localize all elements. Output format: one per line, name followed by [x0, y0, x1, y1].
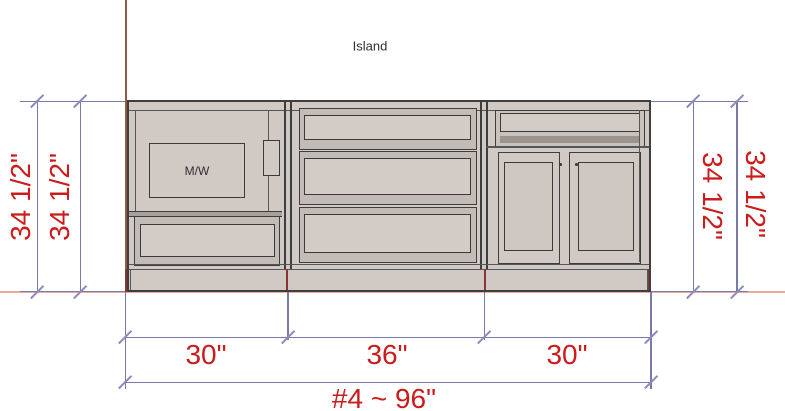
width-dim-label-2[interactable]: 36"	[366, 341, 407, 369]
dim-line	[125, 337, 651, 339]
drawer-front[interactable]	[299, 151, 477, 205]
height-dim-label-right-inner[interactable]: 34 1/2"	[698, 152, 726, 240]
room-label[interactable]: Island	[353, 39, 388, 54]
dim-line	[80, 101, 82, 292]
drawing-canvas: Island M/W	[0, 0, 785, 411]
door-knob	[559, 163, 562, 166]
door-panel	[504, 162, 553, 251]
cabinet-joint-line	[284, 100, 286, 269]
drawer-front-panel	[304, 115, 471, 140]
microwave-box[interactable]: M/W	[149, 143, 245, 198]
two-door-base-cabinet[interactable]	[486, 100, 651, 269]
dim-line	[736, 101, 738, 292]
width-dim-label-3[interactable]: 30"	[546, 341, 587, 369]
dim-line	[37, 101, 39, 292]
microwave-label: M/W	[185, 164, 210, 178]
cabinet-door-right[interactable]	[569, 152, 641, 264]
drawer-front[interactable]	[299, 108, 477, 150]
overall-dim-label[interactable]: #4 ~ 96"	[332, 385, 436, 411]
height-dim-label-right-outer[interactable]: 34 1/2"	[741, 150, 769, 238]
door-panel	[578, 162, 634, 251]
toe-kick-joint-mark	[286, 269, 288, 291]
microwave-handle-panel	[263, 140, 280, 176]
door-knob	[575, 163, 578, 166]
dim-line	[693, 101, 695, 292]
drawer-front-panel	[140, 224, 275, 257]
height-dim-label-left-outer[interactable]: 34 1/2"	[7, 153, 35, 241]
dim-line	[651, 291, 748, 293]
microwave-base-cabinet[interactable]: M/W	[127, 100, 284, 269]
three-drawer-base-cabinet[interactable]	[290, 100, 480, 269]
false-drawer-panel	[500, 113, 640, 132]
cabinet-joint-line	[480, 100, 482, 269]
dim-extension-line	[650, 292, 652, 389]
drawer-shadow	[500, 136, 640, 143]
drawer-front-panel	[304, 158, 471, 195]
dim-extension-line	[125, 292, 127, 389]
width-dim-label-1[interactable]: 30"	[185, 341, 226, 369]
cabinet-run: M/W	[127, 100, 651, 292]
drawer-front[interactable]	[134, 216, 280, 266]
dim-extension-line	[287, 292, 289, 340]
toe-kick-joint-mark	[648, 269, 650, 291]
stile-line	[135, 110, 136, 211]
toe-kick-line	[129, 269, 649, 270]
dim-extension-line	[484, 292, 486, 340]
end-panel-line	[639, 110, 640, 262]
cabinet-door-left[interactable]	[498, 152, 560, 264]
drawer-front-panel	[304, 214, 471, 253]
cabinet-bottom-line	[129, 264, 649, 265]
drawer-front[interactable]	[299, 207, 477, 263]
toe-kick-side-line	[130, 269, 131, 291]
false-drawer-front[interactable]	[495, 110, 645, 148]
toe-kick-joint-mark	[484, 269, 486, 291]
height-dim-label-left-inner[interactable]: 34 1/2"	[46, 153, 74, 241]
cabinet-divider-line	[486, 146, 651, 148]
